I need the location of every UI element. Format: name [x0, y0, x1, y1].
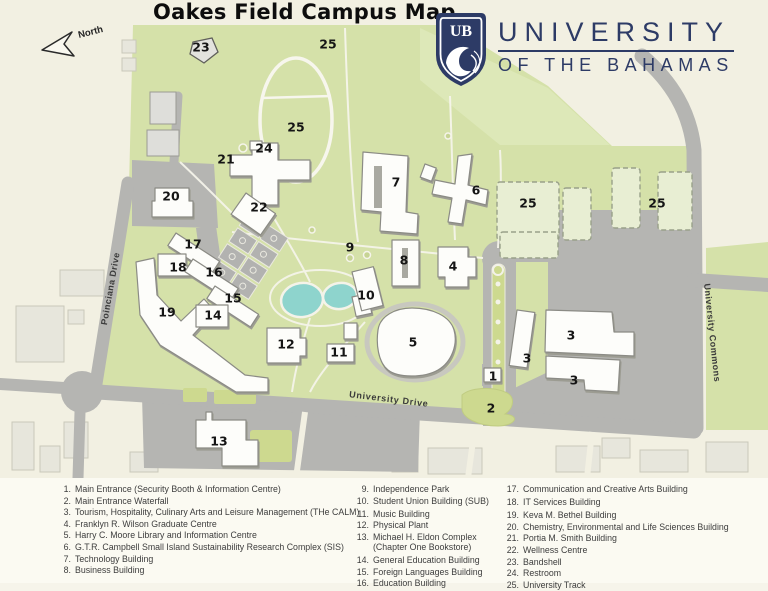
building-label-3: 3: [523, 351, 532, 366]
legend-item-9: 9.Independence Park: [352, 484, 502, 494]
legend-item-label: Harry C. Moore Library and Information C…: [75, 530, 257, 540]
legend-item-number: 25.: [502, 580, 519, 590]
building-label-25: 25: [287, 120, 304, 135]
building-label-10: 10: [357, 288, 374, 303]
legend-item-25: 25.University Track: [502, 580, 764, 590]
legend-item-number: 20.: [502, 522, 519, 532]
legend-item-number: 24.: [502, 568, 519, 578]
legend-item-number: 23.: [502, 557, 519, 567]
legend-item-number: 14.: [352, 555, 369, 565]
building-label-3: 3: [570, 373, 579, 388]
legend-item-8: 8.Business Building: [54, 565, 354, 575]
building-label-3: 3: [567, 328, 576, 343]
building-label-12: 12: [277, 337, 294, 352]
legend-item-24: 24.Restroom: [502, 568, 764, 578]
legend-item-label: Technology Building: [75, 554, 153, 564]
ub-shield-icon: UB: [433, 11, 489, 89]
legend-item-number: 13.: [352, 532, 369, 552]
legend-item-label: Communication and Creative Arts Building: [523, 484, 688, 494]
legend-item-label: Michael H. Eldon Complex (Chapter One Bo…: [373, 532, 502, 552]
legend-item-number: 19.: [502, 510, 519, 520]
building-label-25: 25: [519, 196, 536, 211]
legend-item-label: University Track: [523, 580, 586, 590]
legend-item-label: Main Entrance (Security Booth & Informat…: [75, 484, 281, 494]
building-label-19: 19: [158, 305, 175, 320]
legend-item-21: 21.Portia M. Smith Building: [502, 533, 764, 543]
legend-item-3: 3.Tourism, Hospitality, Culinary Arts an…: [54, 507, 354, 517]
legend-item-number: 8.: [54, 565, 71, 575]
legend-item-label: General Education Building: [373, 555, 480, 565]
building-label-25: 25: [648, 196, 665, 211]
shield-initials: UB: [450, 23, 473, 40]
legend-item-number: 10.: [352, 496, 369, 506]
legend-item-number: 11.: [352, 509, 369, 519]
legend-item-1: 1.Main Entrance (Security Booth & Inform…: [54, 484, 354, 494]
building-label-15: 15: [224, 291, 241, 306]
building-label-25: 25: [319, 37, 336, 52]
building-label-17: 17: [184, 237, 201, 252]
building-label-6: 6: [472, 183, 481, 198]
building-label-22: 22: [250, 200, 267, 215]
legend-item-20: 20.Chemistry, Environmental and Life Sci…: [502, 522, 764, 532]
building-label-24: 24: [255, 141, 272, 156]
building-label-4: 4: [449, 259, 458, 274]
building-label-18: 18: [169, 260, 186, 275]
legend-item-16: 16.Education Building: [352, 578, 502, 588]
legend-item-23: 23.Bandshell: [502, 557, 764, 567]
legend-item-label: Independence Park: [373, 484, 449, 494]
legend-item-label: Restroom: [523, 568, 561, 578]
legend-item-label: Music Building: [373, 509, 430, 519]
roundabout: [61, 371, 103, 413]
legend-item-label: Keva M. Bethel Building: [523, 510, 616, 520]
campus-map: 2325252421202276252517984181610151914351…: [0, 0, 768, 478]
logo-line2: OF THE BAHAMAS: [498, 55, 734, 76]
legend-column-1: 1.Main Entrance (Security Booth & Inform…: [54, 484, 354, 577]
legend-item-label: Main Entrance Waterfall: [75, 496, 169, 506]
legend-item-label: Foreign Languages Building: [373, 567, 483, 577]
legend-item-label: Student Union Building (SUB): [373, 496, 489, 506]
legend-item-number: 1.: [54, 484, 71, 494]
legend-item-number: 12.: [352, 520, 369, 530]
legend-item-number: 5.: [54, 530, 71, 540]
legend-item-number: 6.: [54, 542, 71, 552]
legend-item-4: 4.Franklyn R. Wilson Graduate Centre: [54, 519, 354, 529]
legend-item-label: Business Building: [75, 565, 144, 575]
legend-column-2: 9.Independence Park10.Student Union Buil…: [352, 484, 502, 590]
legend-item-label: Tourism, Hospitality, Culinary Arts and …: [75, 507, 359, 517]
legend-item-label: Portia M. Smith Building: [523, 533, 617, 543]
legend-item-number: 15.: [352, 567, 369, 577]
building-label-21: 21: [217, 152, 234, 167]
legend-item-label: Franklyn R. Wilson Graduate Centre: [75, 519, 217, 529]
legend-item-number: 17.: [502, 484, 519, 494]
legend-item-label: Physical Plant: [373, 520, 428, 530]
legend-item-label: G.T.R. Campbell Small Island Sustainabil…: [75, 542, 344, 552]
legend-item-label: Wellness Centre: [523, 545, 587, 555]
legend-item-number: 7.: [54, 554, 71, 564]
building-label-5: 5: [409, 335, 418, 350]
legend-item-12: 12.Physical Plant: [352, 520, 502, 530]
legend-item-7: 7.Technology Building: [54, 554, 354, 564]
university-logo: UB UNIVERSITY OF THE BAHAMAS: [433, 11, 734, 89]
legend-item-number: 4.: [54, 519, 71, 529]
legend-item-15: 15.Foreign Languages Building: [352, 567, 502, 577]
logo-wordmark: UNIVERSITY OF THE BAHAMAS: [498, 11, 734, 76]
legend-item-22: 22.Wellness Centre: [502, 545, 764, 555]
legend-item-label: Chemistry, Environmental and Life Scienc…: [523, 522, 729, 532]
legend-item-11: 11.Music Building: [352, 509, 502, 519]
page-title: Oakes Field Campus Map: [153, 0, 456, 24]
legend-item-number: 22.: [502, 545, 519, 555]
legend-item-label: IT Services Building: [523, 497, 601, 507]
legend-item-10: 10.Student Union Building (SUB): [352, 496, 502, 506]
service-buildings: [147, 92, 179, 156]
legend-item-5: 5.Harry C. Moore Library and Information…: [54, 530, 354, 540]
building-label-1: 1: [489, 369, 498, 384]
legend-item-number: 3.: [54, 507, 71, 517]
building-label-2: 2: [487, 401, 496, 416]
legend-column-3: 17.Communication and Creative Arts Build…: [502, 484, 764, 591]
legend-item-label: Education Building: [373, 578, 446, 588]
logo-line1: UNIVERSITY: [498, 17, 734, 52]
building-label-20: 20: [162, 189, 179, 204]
legend-item-17: 17.Communication and Creative Arts Build…: [502, 484, 764, 494]
legend-item-2: 2.Main Entrance Waterfall: [54, 496, 354, 506]
legend-item-18: 18.IT Services Building: [502, 497, 764, 507]
building-label-13: 13: [210, 434, 227, 449]
legend: 1.Main Entrance (Security Booth & Inform…: [0, 478, 768, 583]
building-label-9: 9: [346, 240, 355, 255]
building-label-8: 8: [400, 253, 409, 268]
compass: North: [28, 16, 138, 66]
legend-item-14: 14.General Education Building: [352, 555, 502, 565]
legend-item-number: 16.: [352, 578, 369, 588]
legend-item-label: Bandshell: [523, 557, 562, 567]
legend-item-number: 9.: [352, 484, 369, 494]
legend-item-6: 6.G.T.R. Campbell Small Island Sustainab…: [54, 542, 354, 552]
legend-item-number: 21.: [502, 533, 519, 543]
building-label-14: 14: [204, 308, 221, 323]
legend-item-number: 2.: [54, 496, 71, 506]
legend-item-number: 18.: [502, 497, 519, 507]
legend-item-19: 19.Keva M. Bethel Building: [502, 510, 764, 520]
building-label-7: 7: [392, 175, 401, 190]
building-label-16: 16: [205, 265, 222, 280]
building-label-23: 23: [192, 40, 209, 55]
legend-item-13: 13.Michael H. Eldon Complex (Chapter One…: [352, 532, 502, 552]
north-arrow-icon: [28, 16, 138, 66]
building-label-11: 11: [330, 345, 347, 360]
